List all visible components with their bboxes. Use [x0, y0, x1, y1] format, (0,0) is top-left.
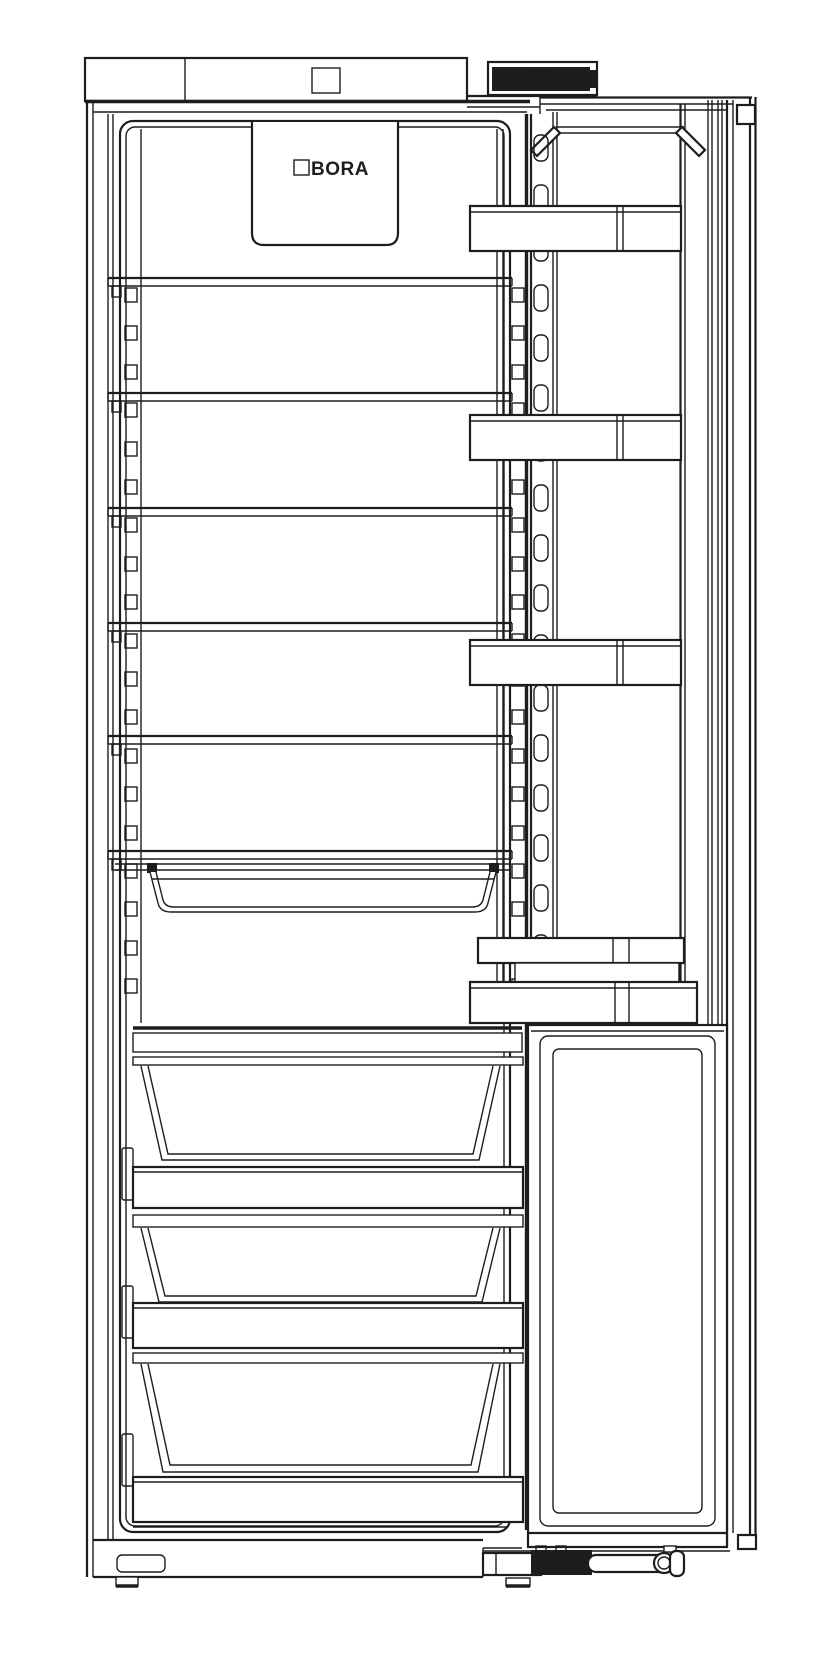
door-panel-lower — [528, 1025, 756, 1549]
door-bin-5 — [470, 982, 697, 1023]
drawer-1-front — [133, 1167, 523, 1208]
drawer-3-front — [133, 1477, 523, 1522]
bottom-hinge — [483, 1546, 730, 1576]
door-bin-1 — [470, 206, 681, 251]
kick-plate — [93, 1540, 530, 1586]
shelf-3 — [108, 508, 512, 527]
door-seal-corner-left — [531, 127, 560, 156]
door-seal-strip — [534, 135, 548, 1011]
kick-plate-vent — [117, 1555, 165, 1572]
shelves — [108, 278, 512, 870]
bora-panel: BORA — [252, 122, 398, 245]
drawer-section — [122, 1028, 523, 1522]
refrigerator-line-drawing: BORA — [0, 0, 832, 1668]
figure-svg: BORA — [0, 0, 832, 1668]
top-vent — [312, 68, 340, 93]
drawer-runner-1 — [122, 1148, 133, 1200]
bora-logo-text: BORA — [311, 159, 369, 180]
pull-out-tray — [115, 863, 510, 912]
foot-right — [506, 1578, 530, 1586]
foot-left — [116, 1577, 138, 1586]
drawer-2 — [133, 1215, 523, 1348]
drawer-1 — [133, 1057, 523, 1208]
shelf-5 — [108, 736, 512, 755]
shelf-2 — [108, 393, 512, 412]
shelf-6 — [108, 851, 512, 870]
drawer-3 — [133, 1353, 523, 1522]
drawer-runner-3 — [122, 1434, 133, 1486]
shelf-4 — [108, 623, 512, 642]
drawer-2-front — [133, 1303, 523, 1348]
door-bin-2 — [470, 415, 681, 460]
shelf-slot-ladder-right — [503, 129, 524, 1023]
door-top-bracket — [737, 105, 755, 124]
drawer-runner-2 — [122, 1286, 133, 1338]
door-bin-3 — [470, 640, 681, 685]
top-hinge — [488, 62, 597, 95]
shelf-1 — [108, 278, 512, 297]
